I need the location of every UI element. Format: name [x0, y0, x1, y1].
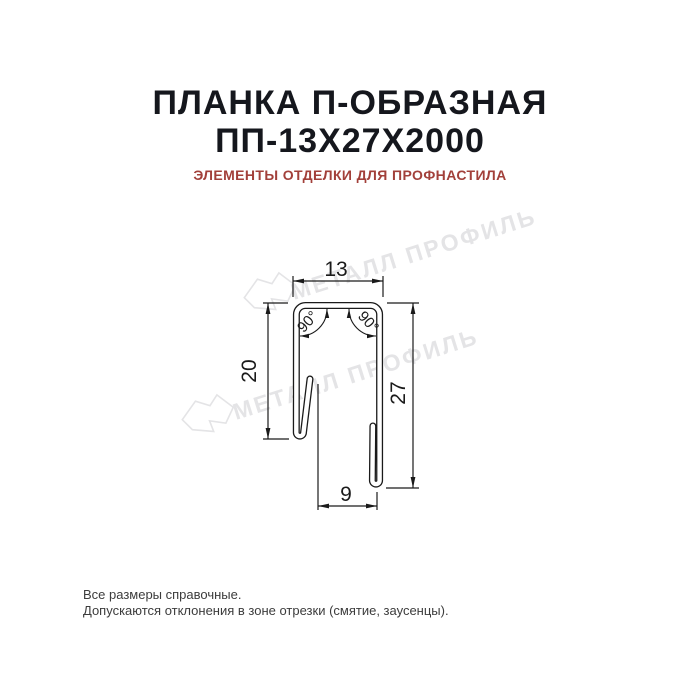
brand-gem-icon [242, 271, 297, 312]
product-sheet: ПЛАНКА П-ОБРАЗНАЯ ПП-13Х27Х2000 ЭЛЕМЕНТЫ… [0, 0, 700, 700]
dimension-right-height: 27 [386, 303, 419, 488]
footer-note-1: Все размеры справочные. [83, 587, 449, 603]
footer-notes: Все размеры справочные. Допускаются откл… [83, 587, 449, 619]
brand-gem-icon [180, 393, 235, 434]
footer-note-2: Допускаются отклонения в зоне отрезки (с… [83, 603, 449, 619]
dimension-bottom-width: 9 [318, 384, 377, 510]
watermark-text-top: МЕТАЛЛ ПРОФИЛЬ [288, 203, 540, 305]
dimension-value-top: 13 [324, 258, 347, 281]
dimension-value-right: 27 [387, 381, 410, 404]
dimension-value-bottom: 9 [340, 483, 352, 506]
dimension-value-left: 20 [238, 359, 261, 382]
